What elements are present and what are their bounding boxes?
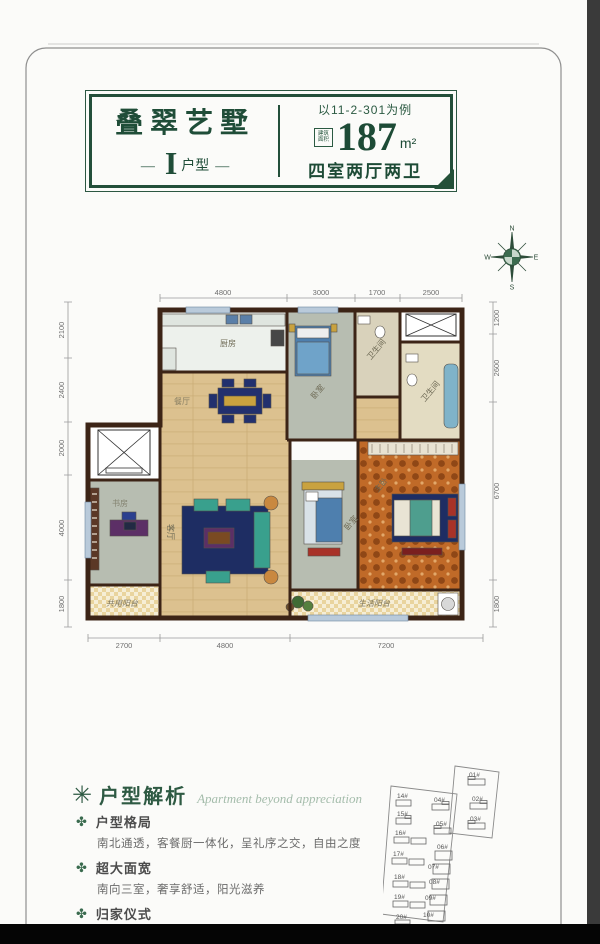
- bldg-09: 09#: [425, 895, 436, 902]
- unit-suffix: 户型: [181, 159, 209, 174]
- bldg-10: 10#: [423, 912, 434, 919]
- room-layout-desc: 四室两厅两卫: [280, 157, 450, 182]
- floor-plan: 厨房 餐厅 卧室 卫生间 卫生间 客厅 卧室 主卧 书房 共用阳台 生活阳台 4: [58, 288, 503, 655]
- analysis-item-heading: 归家仪式: [96, 904, 152, 923]
- project-title-block: 叠翠艺墅 —I户型—: [92, 101, 278, 182]
- dim-top-3: 1700: [369, 288, 386, 297]
- analysis-item-heading: 户型格局: [96, 812, 152, 831]
- building-area-badge: 建筑 面积: [314, 128, 333, 147]
- bldg-16: 16#: [395, 830, 406, 837]
- title-box: 叠翠艺墅 —I户型— 以11-2-301为例 建筑 面积 187 m²: [85, 90, 457, 192]
- bottom-black-bar: [0, 924, 600, 944]
- unit-type-line: —I户型—: [92, 145, 278, 182]
- bldg-08: 08#: [429, 879, 440, 886]
- dash-right: —: [215, 159, 229, 174]
- bldg-06: 06#: [437, 844, 448, 851]
- bldg-02: 02#: [472, 796, 483, 803]
- brochure-page: 叠翠艺墅 —I户型— 以11-2-301为例 建筑 面积 187 m²: [0, 0, 600, 944]
- analysis-item: ✤ 户型格局 南北通透，客餐厨一体化，呈礼序之交，自由之度: [76, 812, 396, 851]
- badge-line2: 面积: [315, 137, 332, 143]
- bldg-19: 19#: [394, 894, 405, 901]
- compass-e: E: [534, 255, 539, 262]
- clover-bullet-icon: ✤: [76, 860, 88, 876]
- bldg-18: 18#: [394, 874, 405, 881]
- analysis-item-head: ✤ 超大面宽: [76, 858, 396, 877]
- dim-right-2: 2600: [492, 360, 501, 377]
- photo-edge-strip: [587, 0, 600, 944]
- compass-n: N: [509, 226, 514, 233]
- analysis-item-desc: 南北通透，客餐厨一体化，呈礼序之交，自由之度: [97, 835, 396, 851]
- analysis-item-head: ✤ 户型格局: [76, 812, 396, 831]
- dash-left: —: [141, 159, 155, 174]
- analysis-item: ✤ 超大面宽 南向三室，奢享舒适，阳光滋养: [76, 858, 396, 897]
- dim-left-5: 1800: [58, 596, 66, 613]
- compass-w: W: [484, 255, 491, 262]
- dim-right-1: 1200: [492, 310, 501, 327]
- dim-bottom-1: 2700: [116, 641, 133, 650]
- project-name: 叠翠艺墅: [92, 101, 278, 141]
- analysis-subtitle: Apartment beyond appreciation: [197, 791, 362, 807]
- dim-bottom-2: 4800: [217, 641, 234, 650]
- label-balcony-service: 生活阳台: [358, 599, 391, 608]
- bldg-05: 05#: [436, 821, 447, 828]
- clover-bullet-icon: ✤: [76, 906, 88, 922]
- dim-top-4: 2500: [423, 288, 440, 297]
- dim-top-1: 4800: [215, 288, 232, 297]
- label-dining: 餐厅: [174, 397, 190, 406]
- bldg-03: 03#: [470, 816, 481, 823]
- title-box-inner: 叠翠艺墅 —I户型— 以11-2-301为例 建筑 面积 187 m²: [89, 94, 453, 188]
- area-block: 以11-2-301为例 建筑 面积 187 m² 四室两厅两卫: [280, 101, 450, 182]
- analysis-item-heading: 超大面宽: [96, 858, 152, 877]
- site-plan-map: 01# 02# 03# 04# 05# 06# 07# 08# 09# 10: [383, 758, 537, 924]
- dim-right-4: 1800: [492, 596, 501, 613]
- label-living: 客厅: [166, 524, 176, 540]
- site-buildings: 01# 02# 03# 04# 05# 06# 07# 08# 09# 10: [392, 772, 487, 924]
- analysis-item-head: ✤ 归家仪式: [76, 904, 396, 923]
- dim-top-2: 3000: [313, 288, 330, 297]
- label-balcony-shared: 共用阳台: [106, 599, 139, 608]
- compass-s: S: [510, 285, 515, 291]
- label-kitchen: 厨房: [220, 338, 236, 348]
- corner-triangle-ornament: [434, 169, 454, 189]
- area-row: 建筑 面积 187 m²: [280, 119, 450, 155]
- label-study: 书房: [112, 498, 128, 508]
- bldg-04: 04#: [434, 797, 445, 804]
- dim-right-3: 6700: [492, 483, 501, 500]
- analysis-header: ✳ 户型解析 Apartment beyond appreciation: [72, 780, 362, 809]
- bldg-15: 15#: [397, 811, 408, 818]
- dim-left-2: 2400: [58, 382, 66, 399]
- bldg-17: 17#: [393, 851, 404, 858]
- dim-left-1: 2100: [58, 322, 66, 339]
- compass-rose-icon: N E S W: [484, 224, 540, 290]
- area-unit: m²: [400, 135, 416, 151]
- bldg-07: 07#: [428, 864, 439, 871]
- dim-left-3: 2000: [58, 440, 66, 457]
- snowflake-icon: ✳: [72, 786, 92, 806]
- analysis-title: 户型解析: [99, 780, 187, 809]
- unit-letter: I: [165, 145, 177, 181]
- clover-bullet-icon: ✤: [76, 814, 88, 830]
- paper-background: 叠翠艺墅 —I户型— 以11-2-301为例 建筑 面积 187 m²: [0, 0, 587, 924]
- dim-bottom-3: 7200: [378, 641, 395, 650]
- bldg-14: 14#: [397, 793, 408, 800]
- area-value: 187: [337, 119, 397, 155]
- analysis-item-desc: 南向三室，奢享舒适，阳光滋养: [97, 881, 396, 897]
- dim-left-4: 4000: [58, 520, 66, 537]
